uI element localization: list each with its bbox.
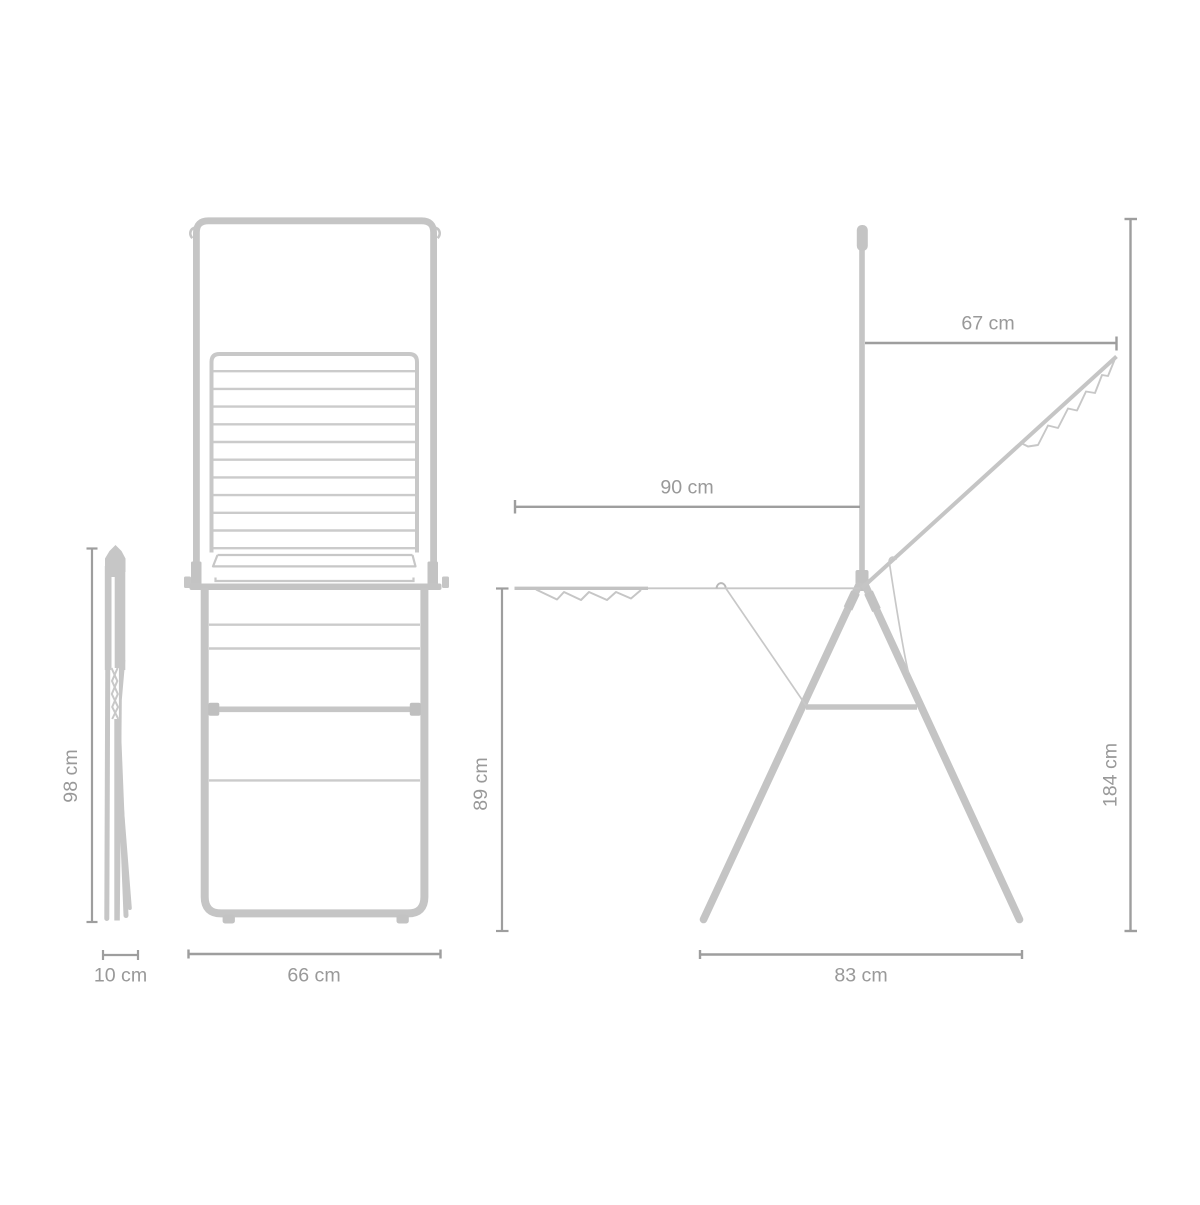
svg-text:98 cm: 98 cm: [60, 749, 82, 802]
svg-text:66 cm: 66 cm: [287, 965, 340, 987]
svg-text:67 cm: 67 cm: [961, 313, 1014, 335]
svg-text:83 cm: 83 cm: [834, 965, 887, 987]
svg-text:90 cm: 90 cm: [660, 477, 713, 499]
svg-text:89 cm: 89 cm: [470, 757, 492, 810]
svg-text:184 cm: 184 cm: [1100, 743, 1122, 807]
svg-text:10 cm: 10 cm: [94, 965, 147, 987]
